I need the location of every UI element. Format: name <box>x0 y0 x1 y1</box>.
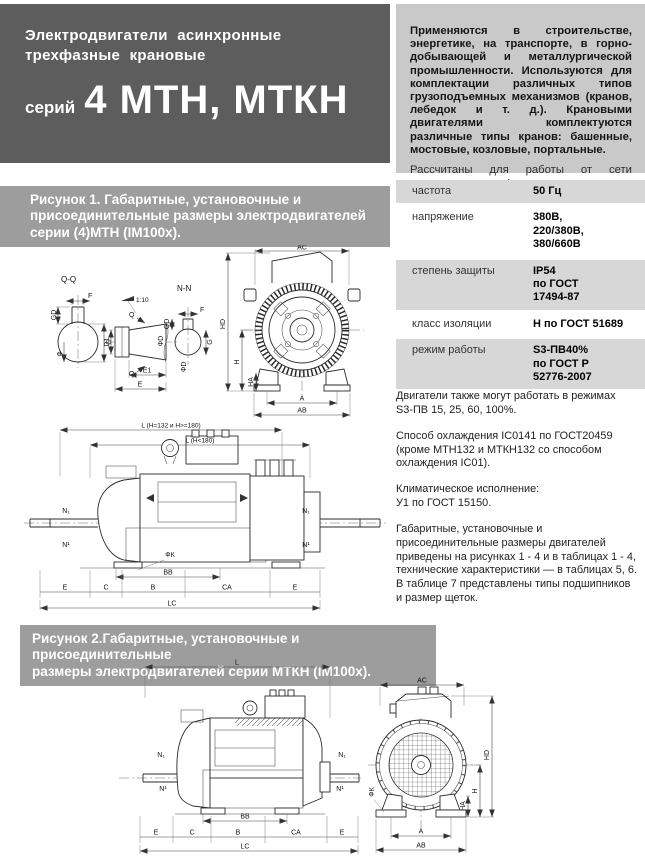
dim-label-g2: G <box>207 339 214 344</box>
dim-label-l: L <box>235 660 239 667</box>
dim-label-ca: CA <box>291 830 301 837</box>
taper-label: 1:10 <box>136 297 149 304</box>
dim-label-h: H <box>234 359 241 364</box>
figure2-side-drawing: L N₁ N¹ N₁ N¹ <box>115 658 365 858</box>
figure2-front-drawing: AC ФК HD H HA A AB <box>362 676 510 860</box>
dim-label-ca: CA <box>222 585 232 592</box>
dim-label-phid2: ФD <box>181 362 188 372</box>
dim-label-e: E <box>138 382 143 389</box>
dim-label-c: C <box>189 830 194 837</box>
title-block: Электродвигатели асинхронные трехфазные … <box>0 4 390 163</box>
figure1-caption: Рисунок 1. Габаритные, установочные и пр… <box>0 186 390 247</box>
spec-value: Н по ГОСТ 51689 <box>533 318 639 331</box>
dim-label-n1-left-top: N₁ <box>157 752 165 759</box>
spec-label: напряжение <box>412 211 533 251</box>
section-label-q-bottom: Q <box>129 371 135 378</box>
view-nn: N-N F GD G ФD <box>164 284 214 372</box>
spec-row-voltage: напряжение 380В, 220/380В, 380/660В <box>396 206 645 256</box>
section-label-q-top: Q <box>129 312 135 319</box>
spec-row-duty: режим работы S3-ПВ40% по ГОСТ Р 52776-20… <box>396 339 645 389</box>
dim-label-b: B <box>151 585 156 592</box>
series-prefix: серий <box>25 98 75 118</box>
spec-label: класс изоляции <box>412 318 533 331</box>
catalog-page: Электродвигатели асинхронные трехфазные … <box>0 0 645 862</box>
spec-row-frequency: частота 50 Гц <box>396 180 645 203</box>
note-duty-modes: Двигатели также могут работать в режимах… <box>396 390 639 418</box>
dim-label-e-left: E <box>154 830 159 837</box>
dim-label-gd: GD <box>51 310 58 321</box>
dim-label-a: A <box>300 396 305 403</box>
dim-label-f: F <box>88 293 92 300</box>
dim-label-hd: HD <box>220 319 227 329</box>
dim-label-l-short: L (H<180) <box>186 438 215 445</box>
spec-value: S3-ПВ40% по ГОСТ Р 52776-2007 <box>533 344 639 384</box>
figure1-front-view: AC HD H HA A AB <box>220 245 364 417</box>
dim-label-gd2: GD <box>164 319 171 330</box>
spec-value: 380В, 220/380В, 380/660В <box>533 211 639 251</box>
spec-label: частота <box>412 185 533 198</box>
figure1-bottom-dims: BB E C B CA E LC <box>40 568 320 610</box>
dim-label-lc: LC <box>241 844 250 851</box>
figure2-bottom-dims: BB E C B CA E LC <box>140 814 358 855</box>
view-label-nn: N-N <box>177 284 191 293</box>
dim-label-phik: ФК <box>165 552 175 559</box>
dim-label-bb: BB <box>163 570 173 577</box>
spec-label: режим работы <box>412 344 533 384</box>
note-tables-reference: Габаритные, установочные и присоединител… <box>396 523 639 606</box>
dim-label-l-long: L (H=132 и H>=180) <box>141 423 200 430</box>
spec-label: степень защиты <box>412 265 533 305</box>
view-shaft-cone: 1:10 Q Q D1 ФD E1 E <box>104 296 180 392</box>
spec-row-insulation: класс изоляции Н по ГОСТ 51689 <box>396 313 645 336</box>
note-cooling: Способ охлаждения IC0141 по ГОСТ20459 (к… <box>396 430 639 472</box>
application-block: Применяются в строительстве, энергетике,… <box>396 4 645 173</box>
dim-label-n1-right-top: N₁ <box>338 752 346 759</box>
dim-label-n1-left-bottom: N¹ <box>159 786 167 793</box>
dim-label-phid: ФD <box>158 336 165 346</box>
application-text: Применяются в строительстве, энергетике,… <box>410 25 632 157</box>
view-qq: Q-Q F GD G Ф <box>51 275 113 368</box>
dim-label-b: B <box>236 830 241 837</box>
dim-label-hd: HD <box>484 750 491 760</box>
dim-label-n1-right-bottom: N¹ <box>302 542 310 549</box>
series-name: 4 МТН, МТКН <box>84 78 348 123</box>
figure1-side-drawing: L (H=132 и H>=180) L (H<180) <box>20 420 390 620</box>
dim-label-ac: AC <box>297 245 307 252</box>
dim-label-n1-right-top: N₁ <box>302 508 310 515</box>
spec-value: IP54 по ГОСТ 17494-87 <box>533 265 639 305</box>
figure2-front-body <box>376 687 466 817</box>
dim-label-e1: E1 <box>143 368 152 375</box>
dim-label-lc: LC <box>168 601 177 608</box>
dim-label-e-left: E <box>63 585 68 592</box>
figure1-views-drawing: Q-Q F GD G Ф 1:10 Q Q <box>20 245 390 420</box>
dim-label-phi: Ф <box>57 351 64 356</box>
notes-column: Двигатели также могут работать в режимах… <box>396 390 639 618</box>
dim-label-d1: D1 <box>104 337 111 346</box>
dim-label-f2: F <box>200 307 204 314</box>
spec-table: частота 50 Гц напряжение 380В, 220/380В,… <box>396 180 645 392</box>
dim-label-c: C <box>103 585 108 592</box>
dim-label-ac: AC <box>417 678 427 685</box>
dim-label-ab: AB <box>416 843 426 850</box>
dim-label-ab: AB <box>297 408 307 415</box>
dim-label-a: A <box>419 829 424 836</box>
dim-label-n1-right-bottom: N¹ <box>336 786 344 793</box>
spec-value: 50 Гц <box>533 185 639 198</box>
dim-label-ha: HA <box>460 801 467 811</box>
spec-row-protection: степень защиты IP54 по ГОСТ 17494-87 <box>396 260 645 310</box>
figure1-motor-body <box>30 430 380 568</box>
note-climate: Климатическое исполнение: У1 по ГОСТ 151… <box>396 483 639 511</box>
dim-label-e-right: E <box>340 830 345 837</box>
dim-label-ha: HA <box>248 377 255 387</box>
dim-label-bb: BB <box>240 814 250 821</box>
figure2-motor-body <box>143 690 359 814</box>
product-title: Электродвигатели асинхронные трехфазные … <box>25 26 281 67</box>
dim-label-phik: ФК <box>369 786 376 796</box>
dim-label-e-right: E <box>293 585 298 592</box>
dim-label-n1-left-bottom: N¹ <box>62 542 70 549</box>
view-label-qq: Q-Q <box>61 275 76 284</box>
series-line: серий 4 МТН, МТКН <box>25 78 348 123</box>
dim-label-n1-left-top: N₁ <box>62 508 70 515</box>
dim-label-h: H <box>472 788 479 793</box>
